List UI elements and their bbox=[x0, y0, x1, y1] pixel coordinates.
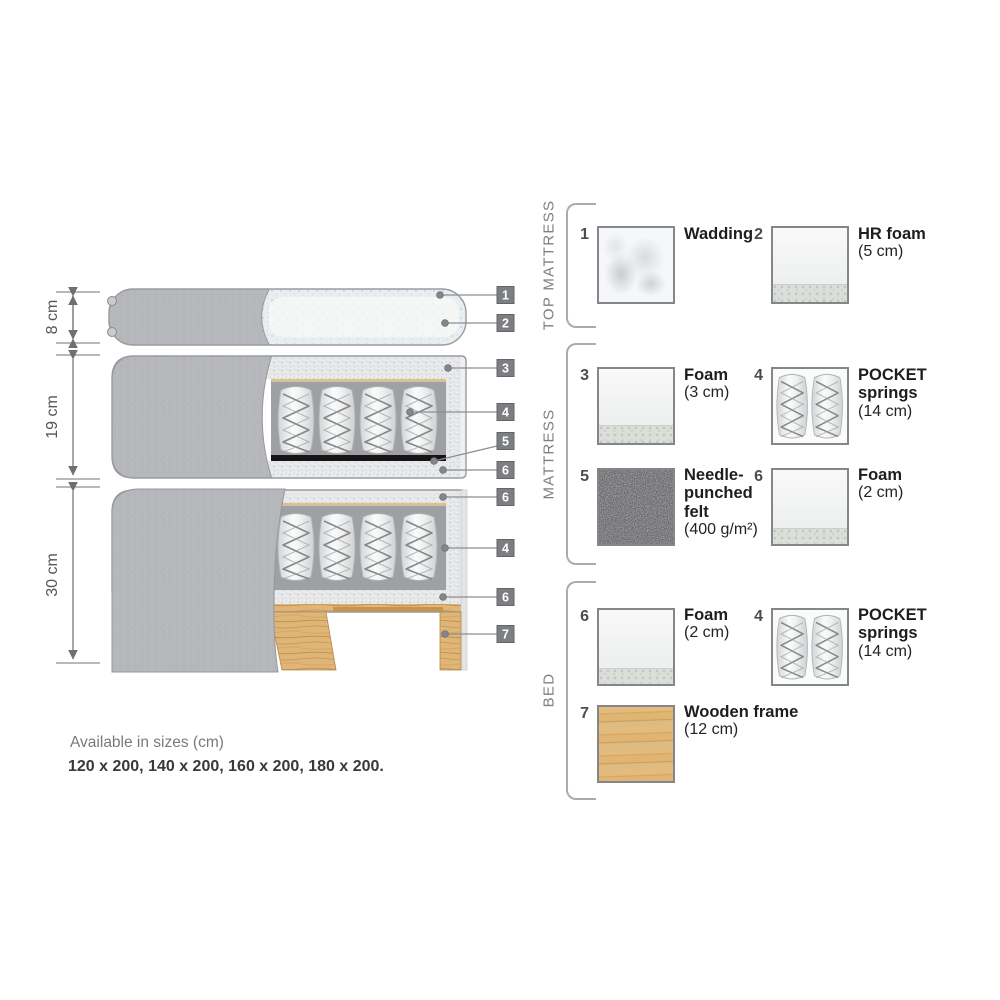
svg-text:3: 3 bbox=[502, 362, 509, 376]
wood-swatch bbox=[597, 705, 675, 783]
pocket-springs-graphic bbox=[773, 369, 847, 443]
top-foam-layer bbox=[265, 490, 461, 504]
callout-1: 1 bbox=[497, 287, 514, 304]
material-detail: (14 cm) bbox=[858, 403, 946, 421]
bottom-foam-layer bbox=[265, 590, 461, 606]
callout-5: 5 bbox=[497, 433, 514, 450]
felt-texture-graphic bbox=[599, 470, 673, 544]
mattress-section bbox=[112, 355, 466, 479]
hr-foam-swatch bbox=[771, 226, 849, 304]
group-label-mattress: MATTRESS bbox=[541, 409, 558, 500]
legend-number: 4 bbox=[741, 609, 763, 625]
material-detail: (2 cm) bbox=[858, 484, 946, 502]
legend-number: 6 bbox=[741, 469, 763, 485]
mattress-button bbox=[108, 297, 117, 306]
svg-text:4: 4 bbox=[502, 542, 509, 556]
material-name: Wooden frame bbox=[684, 703, 854, 721]
legend-label: Wooden frame (12 cm) bbox=[684, 703, 854, 739]
dimension-label-30cm: 30 cm bbox=[44, 553, 61, 597]
fabric-cover bbox=[109, 288, 270, 346]
callout-6: 6 bbox=[497, 462, 514, 479]
legend-number: 3 bbox=[567, 368, 589, 384]
mattress-button bbox=[108, 328, 117, 337]
callout-badges: 1 2 3 4 5 6 6 4 6 7 bbox=[497, 287, 514, 643]
svg-text:5: 5 bbox=[502, 435, 509, 449]
fabric-cover bbox=[112, 355, 272, 479]
material-name: POCKET springs bbox=[858, 366, 946, 403]
foam-swatch bbox=[597, 367, 675, 445]
svg-text:6: 6 bbox=[502, 464, 509, 478]
svg-text:7: 7 bbox=[502, 628, 509, 642]
foam-swatch bbox=[597, 608, 675, 686]
pocket-springs-swatch bbox=[771, 367, 849, 445]
svg-text:1: 1 bbox=[502, 289, 509, 303]
fabric-skirt bbox=[112, 489, 285, 672]
svg-text:6: 6 bbox=[502, 491, 509, 505]
material-detail: (400 g/m²) bbox=[684, 521, 772, 539]
svg-text:4: 4 bbox=[502, 406, 509, 420]
legend-number: 7 bbox=[567, 706, 589, 722]
callout-2: 2 bbox=[497, 315, 514, 332]
material-name: Foam bbox=[858, 466, 946, 484]
material-name: POCKET springs bbox=[858, 606, 946, 643]
legend-label: HR foam (5 cm) bbox=[858, 225, 946, 261]
callout-6c: 6 bbox=[497, 589, 514, 606]
material-detail: (12 cm) bbox=[684, 721, 854, 739]
available-sizes-list: 120 x 200, 140 x 200, 160 x 200, 180 x 2… bbox=[68, 758, 384, 776]
ticking-edge-strip bbox=[461, 490, 467, 670]
bed-cross-section-diagram: 8 cm 19 cm 30 cm 1 2 3 4 5 6 6 4 6 7 bbox=[0, 0, 540, 1000]
callout-4b: 4 bbox=[497, 540, 514, 557]
dimension-ticks bbox=[56, 292, 100, 663]
pocket-springs-graphic bbox=[773, 610, 847, 684]
bed-section bbox=[112, 489, 467, 672]
callout-6b: 6 bbox=[497, 489, 514, 506]
available-sizes-heading: Available in sizes (cm) bbox=[70, 734, 224, 752]
foam-swatch bbox=[771, 468, 849, 546]
top-foam-layer bbox=[265, 356, 461, 379]
legend-number: 4 bbox=[741, 368, 763, 384]
dimension-label-8cm: 8 cm bbox=[44, 300, 61, 335]
material-detail: (5 cm) bbox=[858, 243, 946, 261]
callout-7: 7 bbox=[497, 626, 514, 643]
top-mattress-section bbox=[108, 288, 467, 346]
dimension-label-19cm: 19 cm bbox=[44, 395, 61, 439]
felt-swatch bbox=[597, 468, 675, 546]
legend-number: 1 bbox=[567, 227, 589, 243]
wooden-leg-left bbox=[270, 612, 336, 670]
needle-felt-layer bbox=[271, 455, 446, 461]
wooden-leg-right bbox=[440, 612, 461, 670]
legend-number: 2 bbox=[741, 227, 763, 243]
legend-number: 6 bbox=[567, 609, 589, 625]
mattress-infographic: { "diagram": { "dimensions": [ {"label":… bbox=[0, 0, 1000, 1000]
material-name: HR foam bbox=[858, 225, 946, 243]
legend-label: POCKET springs (14 cm) bbox=[858, 366, 946, 421]
wadding-swatch bbox=[597, 226, 675, 304]
hr-foam-core bbox=[269, 297, 459, 337]
callout-3: 3 bbox=[497, 360, 514, 377]
material-detail: (14 cm) bbox=[858, 643, 946, 661]
callout-4: 4 bbox=[497, 404, 514, 421]
group-label-bed: BED bbox=[541, 673, 558, 708]
group-label-top-mattress: TOP MATTRESS bbox=[541, 200, 558, 331]
legend-label: POCKET springs (14 cm) bbox=[858, 606, 946, 661]
material-detail: (2 cm) bbox=[684, 624, 772, 642]
bracket-top-mattress bbox=[566, 203, 596, 328]
pocket-springs-swatch bbox=[771, 608, 849, 686]
svg-text:6: 6 bbox=[502, 591, 509, 605]
legend-number: 5 bbox=[567, 469, 589, 485]
material-detail: (3 cm) bbox=[684, 384, 772, 402]
legend-label: Foam (2 cm) bbox=[858, 466, 946, 502]
svg-text:2: 2 bbox=[502, 317, 509, 331]
